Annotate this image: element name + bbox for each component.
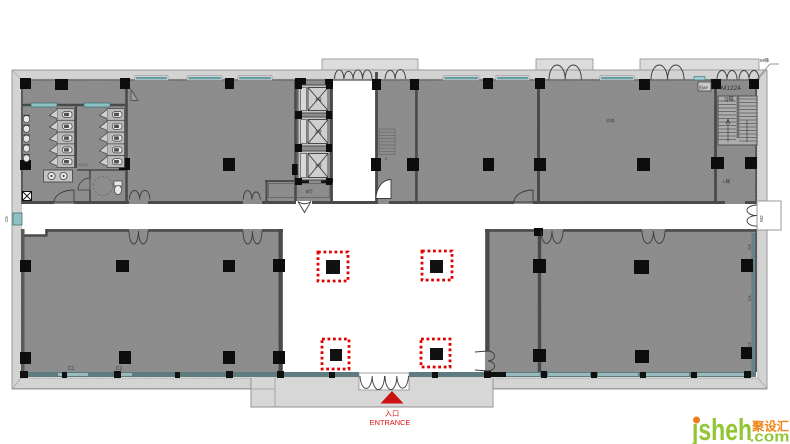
svg-text:2j梅: 2j梅: [724, 95, 734, 103]
svg-text:旧AF: 旧AF: [699, 84, 709, 90]
svg-text:机电: 机电: [606, 117, 615, 124]
svg-text:C2: C2: [747, 342, 752, 348]
svg-text:C1: C1: [116, 366, 123, 372]
svg-text:2: 2: [385, 157, 387, 161]
svg-text:入口: 入口: [385, 409, 399, 418]
svg-text:M梯: M梯: [760, 57, 769, 64]
svg-text:C5: C5: [4, 216, 9, 222]
svg-text:M2: M2: [759, 215, 765, 222]
svg-text:M1224: M1224: [721, 85, 741, 92]
svg-text:C4: C4: [747, 244, 752, 250]
svg-text:B厅: B厅: [306, 189, 313, 194]
svg-text:W102: W102: [78, 163, 88, 167]
svg-text:C4: C4: [747, 295, 752, 301]
svg-text:ENTRANCE: ENTRANCE: [370, 418, 411, 427]
svg-text:.com: .com: [750, 429, 790, 444]
svg-text:C1: C1: [68, 366, 75, 372]
svg-text:L梯: L梯: [723, 178, 731, 185]
